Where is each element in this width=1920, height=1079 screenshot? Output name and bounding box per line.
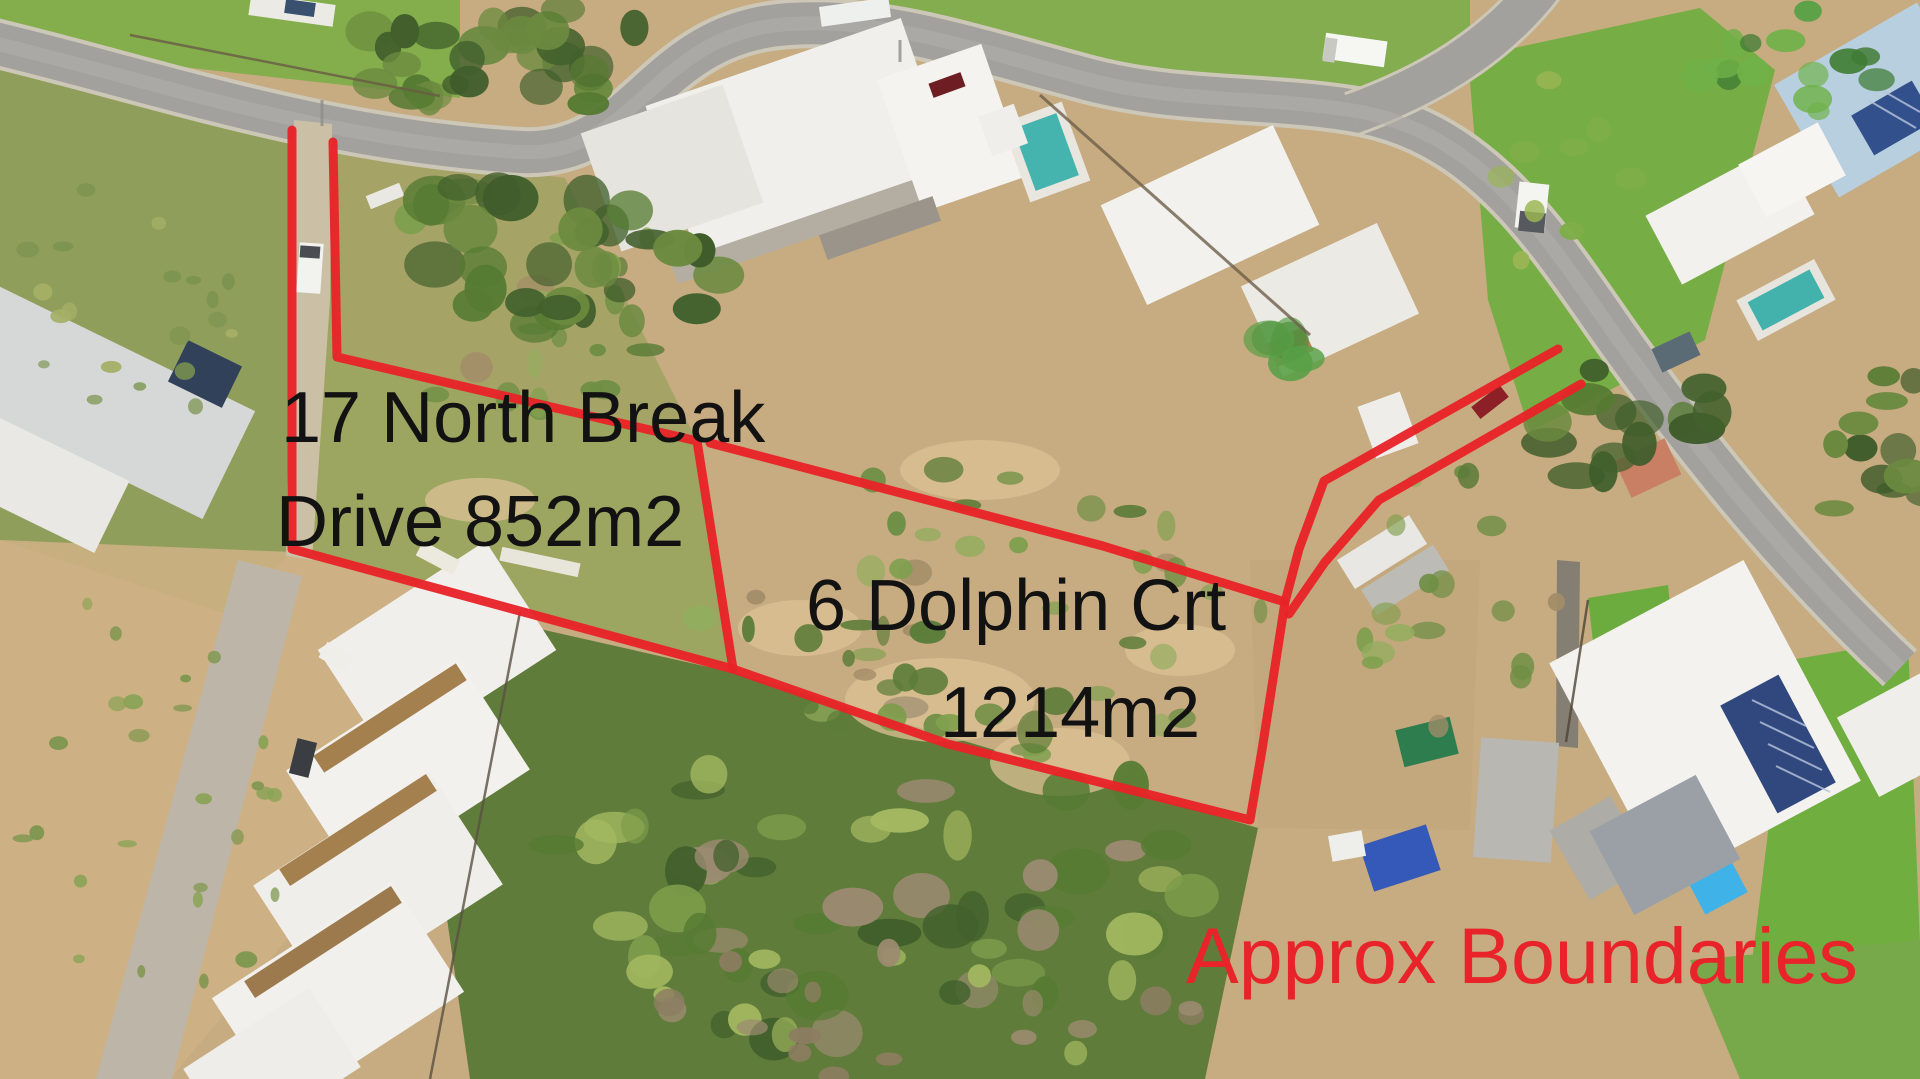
label-dolphin-line1: 6 Dolphin Crt [806, 566, 1226, 646]
label-approx-boundaries: Approx Boundaries [1186, 911, 1858, 1000]
label-north-break-line2: Drive 852m2 [276, 482, 684, 562]
label-dolphin-line2: 1214m2 [940, 673, 1200, 753]
aerial-photo: 17 North Break Drive 852m2 6 Dolphin Crt… [0, 0, 1920, 1079]
aerial-photo-canvas: 17 North Break Drive 852m2 6 Dolphin Crt… [0, 0, 1920, 1079]
label-north-break-line1: 17 North Break [281, 378, 766, 458]
